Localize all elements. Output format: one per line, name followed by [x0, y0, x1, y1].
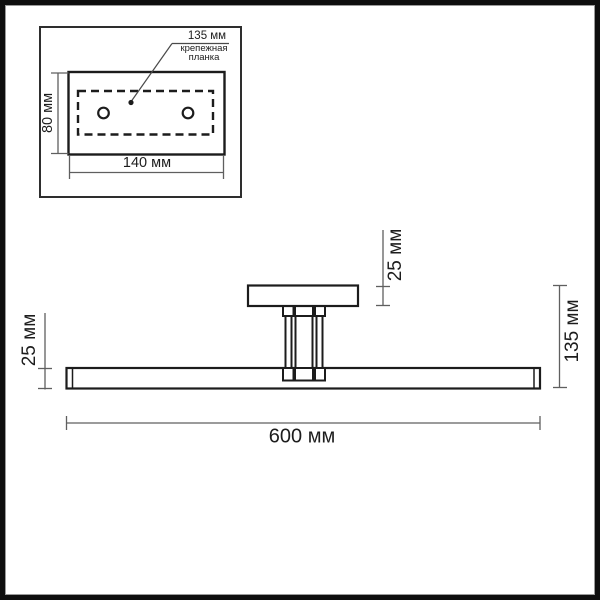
bracket-tab-right [315, 306, 325, 316]
bracket-foot-center [295, 368, 313, 381]
bracket-arm-left [286, 316, 292, 368]
swivel-stem [296, 316, 313, 368]
backplate-outline [69, 72, 225, 155]
inset-plank-name-label: крепежная планка [172, 45, 236, 62]
bracket-foot-right [315, 368, 325, 381]
inset-plank-width-label: 135 мм [188, 30, 226, 42]
leader-dot [128, 100, 133, 105]
canopy-plate [248, 286, 358, 307]
screw-hole-left [98, 108, 109, 119]
bracket-foot-left [283, 368, 294, 381]
lamp-front-view [38, 230, 567, 430]
overall-height-label: 135 мм [562, 299, 584, 362]
canopy-height-label: 25 мм [385, 229, 407, 282]
bar-thickness-label: 25 мм [19, 314, 41, 367]
screw-hole-right [183, 108, 194, 119]
overall-length-label: 600 мм [269, 426, 335, 449]
bracket-arm-right [317, 316, 323, 368]
inset-plate-height-label: 80 мм [40, 93, 56, 133]
dimension-drawing-page: 135 мм крепежная планка 80 мм 140 мм 25 … [0, 0, 600, 600]
line-art-canvas [0, 0, 600, 600]
inset-plate-width-label: 140 мм [123, 155, 171, 171]
bracket-tab-left [283, 306, 294, 316]
bracket-tab-center [295, 306, 313, 316]
